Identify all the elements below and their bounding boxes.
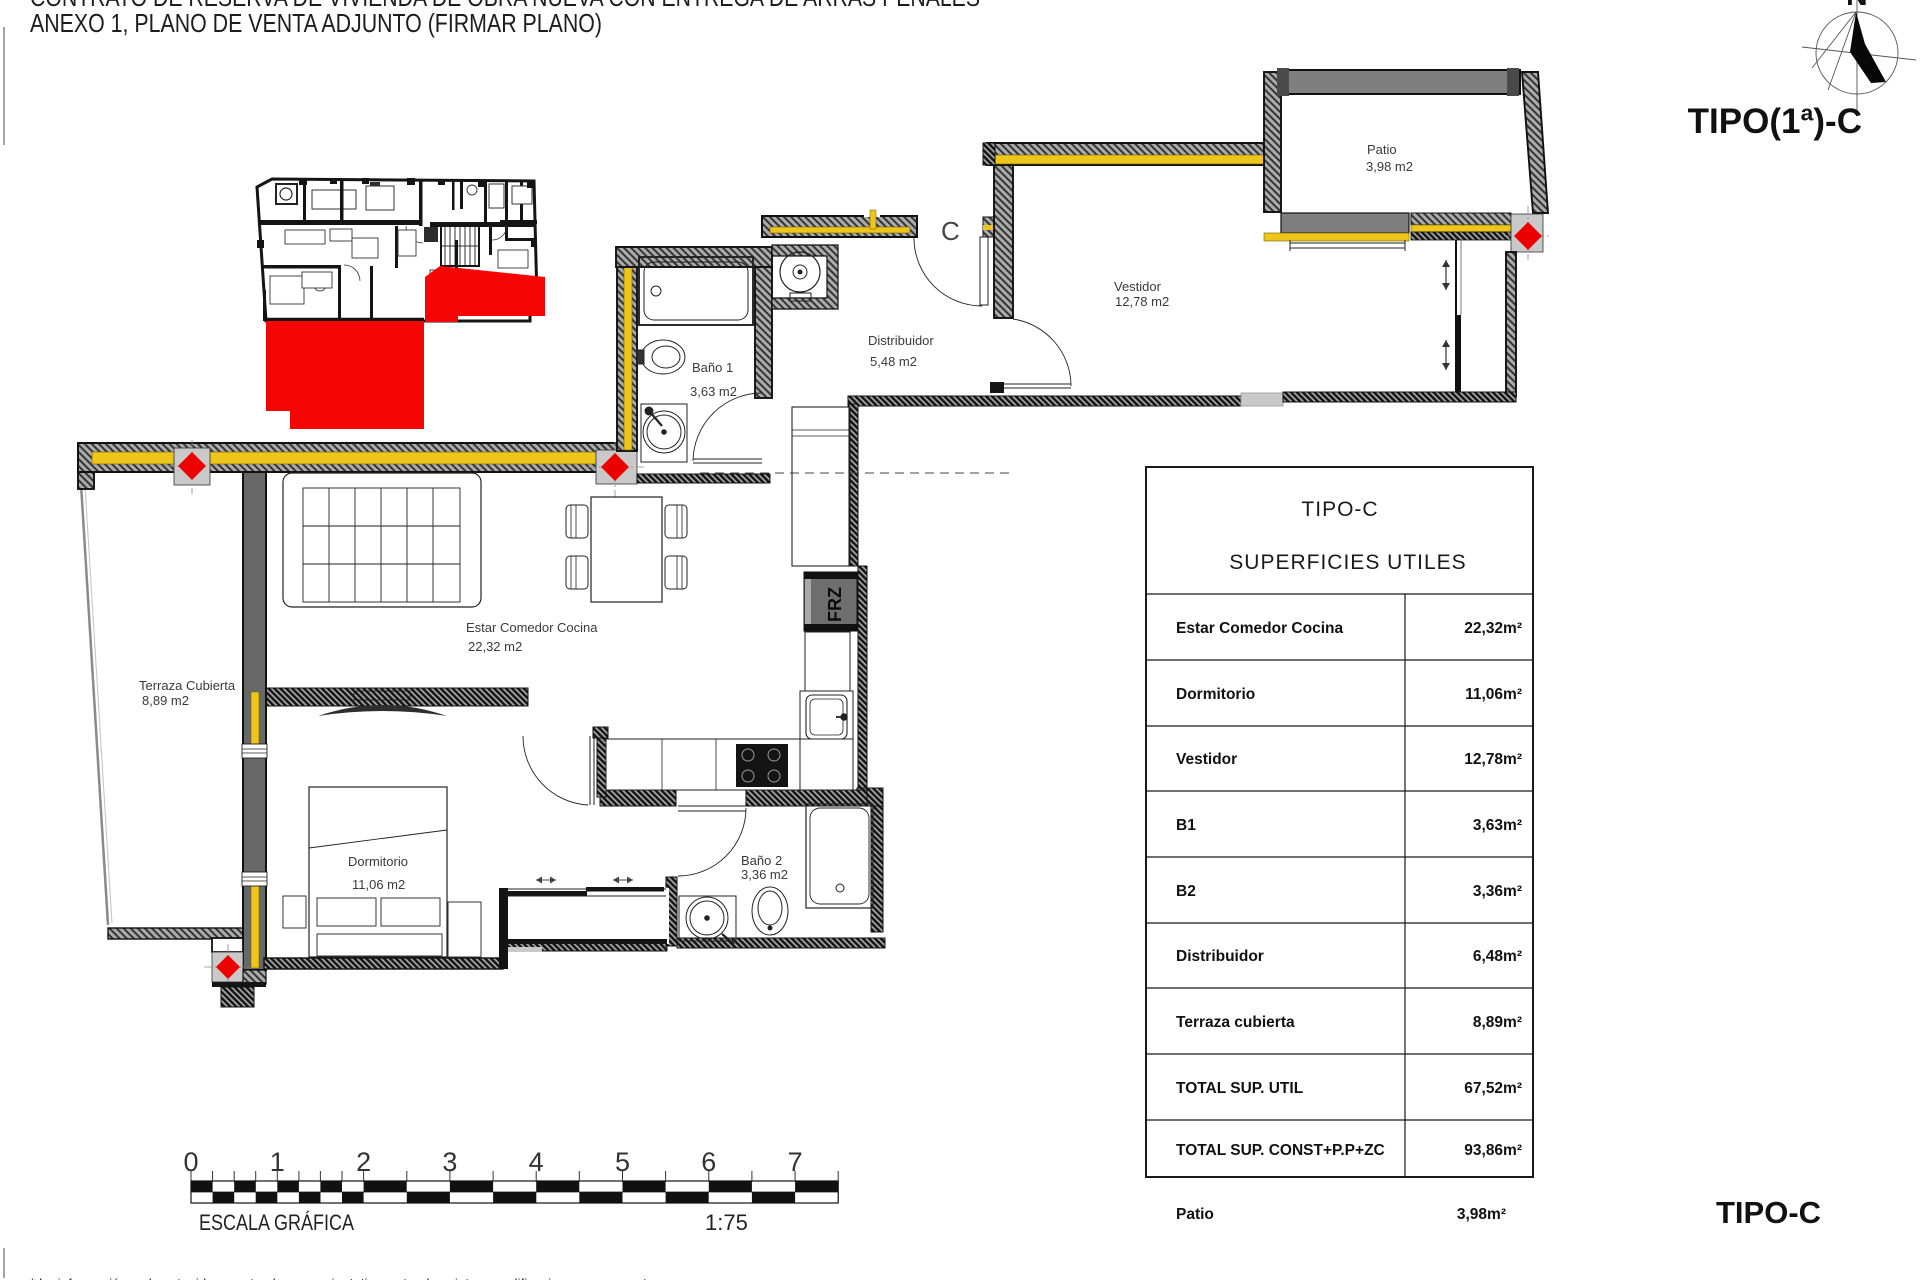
svg-text:5: 5 — [615, 1147, 630, 1177]
svg-text:TOTAL SUP. UTIL: TOTAL SUP. UTIL — [1176, 1080, 1303, 1097]
svg-text:5,48 m2: 5,48 m2 — [870, 354, 917, 369]
svg-text:12,78m²: 12,78m² — [1464, 751, 1522, 768]
svg-text:Dormitorio: Dormitorio — [1176, 686, 1255, 703]
svg-text:12,78 m2: 12,78 m2 — [1115, 294, 1169, 309]
svg-text:3,36m²: 3,36m² — [1473, 883, 1522, 900]
svg-text:TIPO-C: TIPO-C — [1716, 1195, 1821, 1230]
svg-text:B1: B1 — [1176, 817, 1196, 834]
svg-text:Estar Comedor Cocina: Estar Comedor Cocina — [466, 620, 598, 635]
svg-text:FRZ: FRZ — [825, 587, 845, 622]
svg-text:4: 4 — [529, 1147, 544, 1177]
svg-text:7: 7 — [788, 1147, 803, 1177]
svg-text:Baño 1: Baño 1 — [692, 360, 733, 375]
svg-text:11,06m²: 11,06m² — [1465, 686, 1522, 703]
svg-text:11,06 m2: 11,06 m2 — [352, 877, 405, 892]
svg-text:2: 2 — [356, 1147, 371, 1177]
svg-text:TOTAL SUP. CONST+P.P+ZC: TOTAL SUP. CONST+P.P+ZC — [1176, 1142, 1385, 1159]
svg-text:1:75: 1:75 — [705, 1210, 748, 1235]
svg-text:Estar Comedor Cocina: Estar Comedor Cocina — [1176, 620, 1343, 637]
svg-text:3,98 m2: 3,98 m2 — [1366, 159, 1413, 174]
svg-text:8,89 m2: 8,89 m2 — [142, 693, 189, 708]
svg-text:6: 6 — [701, 1147, 716, 1177]
svg-text:3,63m²: 3,63m² — [1473, 817, 1522, 834]
svg-text:67,52m²: 67,52m² — [1464, 1080, 1522, 1097]
svg-text:22,32 m2: 22,32 m2 — [468, 639, 522, 654]
svg-text:ANEXO 1, PLANO DE VENTA ADJUNT: ANEXO 1, PLANO DE VENTA ADJUNTO (FIRMAR … — [30, 8, 602, 38]
svg-text:N: N — [1846, 0, 1868, 12]
svg-text:3: 3 — [442, 1147, 457, 1177]
svg-text:Baño 2: Baño 2 — [741, 853, 782, 868]
svg-text:C: C — [941, 216, 960, 246]
svg-text:Distribuidor: Distribuidor — [1176, 948, 1264, 965]
svg-text:Terraza cubierta: Terraza cubierta — [1176, 1014, 1295, 1031]
svg-text:3,36 m2: 3,36 m2 — [741, 867, 788, 882]
svg-text:SUPERFICIES UTILES: SUPERFICIES UTILES — [1229, 551, 1466, 574]
svg-text:TIPO(1ª)-C: TIPO(1ª)-C — [1688, 102, 1862, 141]
svg-text:Dormitorio: Dormitorio — [348, 854, 408, 869]
svg-text:TIPO-C: TIPO-C — [1301, 498, 1378, 521]
svg-text:Patio: Patio — [1367, 142, 1397, 157]
svg-text:22,32m²: 22,32m² — [1464, 620, 1522, 637]
svg-text:8,89m²: 8,89m² — [1473, 1014, 1522, 1031]
svg-text:Vestidor: Vestidor — [1114, 279, 1162, 294]
svg-text:6,48m²: 6,48m² — [1473, 948, 1522, 965]
svg-text:93,86m²: 93,86m² — [1464, 1142, 1522, 1159]
svg-text:Terraza Cubierta: Terraza Cubierta — [139, 678, 236, 693]
svg-text:Patio: Patio — [1176, 1206, 1214, 1223]
svg-text:ESCALA GRÁFICA: ESCALA GRÁFICA — [199, 1210, 354, 1235]
svg-text:1: 1 — [270, 1147, 285, 1177]
svg-text:Distribuidor: Distribuidor — [868, 333, 934, 348]
svg-text:3,98m²: 3,98m² — [1457, 1206, 1506, 1223]
svg-text:3,63 m2: 3,63 m2 — [690, 384, 737, 399]
svg-text:0: 0 — [183, 1147, 198, 1177]
svg-text:B2: B2 — [1176, 883, 1196, 900]
svg-text:Vestidor: Vestidor — [1176, 751, 1237, 768]
svg-text:* La información y el contenid: * La información y el contenido en este … — [30, 1276, 658, 1280]
